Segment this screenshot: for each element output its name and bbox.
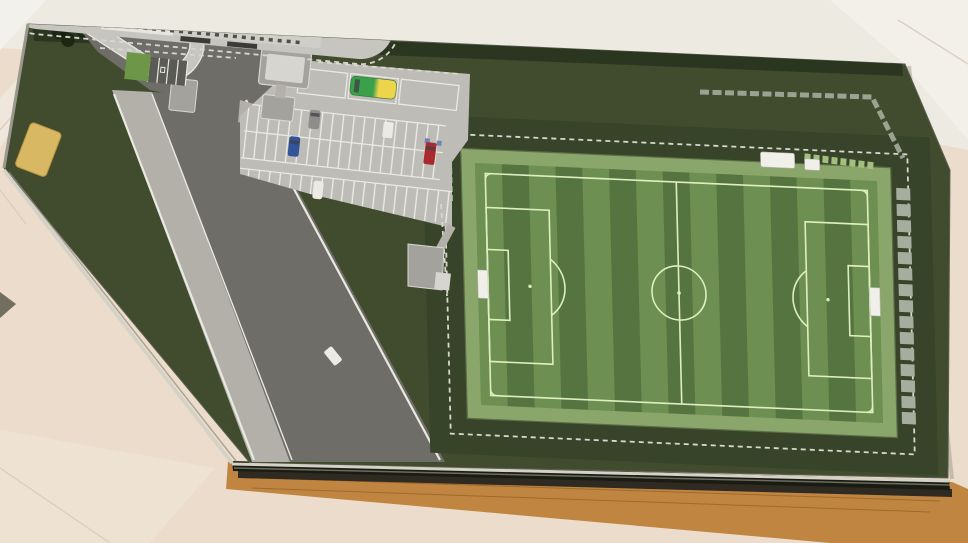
white-van [382, 122, 394, 139]
model-photograph: Overhead photograph of an architectural … [0, 0, 968, 543]
parking-sign [436, 140, 442, 146]
photo-stage: Overhead photograph of an architectural … [0, 0, 968, 543]
gatehouse-annex [261, 94, 295, 121]
terrace-wall [903, 188, 909, 424]
outbuilding-annex [434, 272, 451, 290]
accessible-parking [147, 57, 187, 86]
dugout [180, 38, 210, 41]
hedge-patch [124, 52, 151, 81]
pitchside-kiosk [805, 159, 820, 171]
grey-car [308, 109, 321, 129]
pitchside-building [760, 152, 794, 169]
blue-car [287, 136, 300, 157]
white-car [312, 181, 324, 200]
dugout [227, 44, 257, 47]
goal-right [870, 288, 881, 316]
pitch-complex [422, 115, 938, 476]
goal-left [478, 270, 489, 298]
gatehouse-walk [275, 84, 286, 99]
